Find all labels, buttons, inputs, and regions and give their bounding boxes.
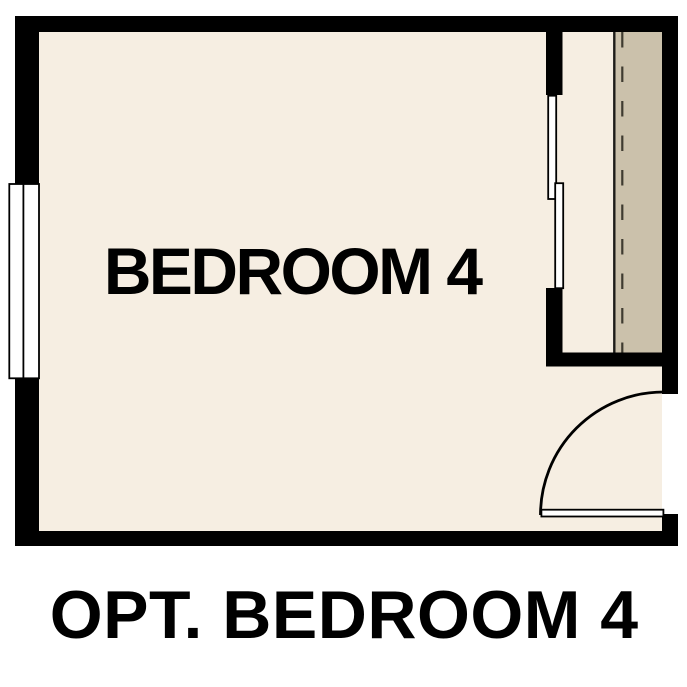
svg-text:BEDROOM 4: BEDROOM 4 — [104, 234, 484, 308]
svg-text:OPT. BEDROOM 4: OPT. BEDROOM 4 — [50, 577, 639, 653]
